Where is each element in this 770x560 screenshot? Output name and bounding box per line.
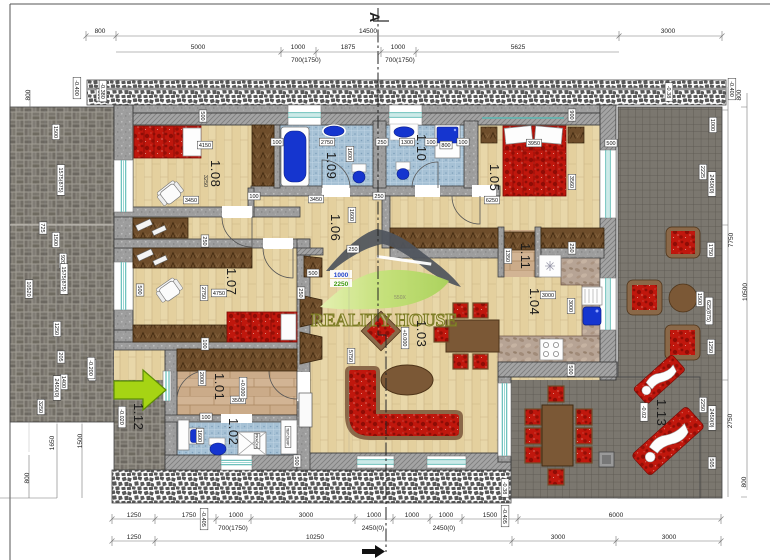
svg-text:205: 205 (57, 352, 63, 361)
svg-text:1600: 1600 (346, 148, 352, 160)
svg-text:1.08: 1.08 (208, 160, 223, 187)
svg-text:1000: 1000 (229, 512, 244, 519)
svg-text:2750: 2750 (727, 413, 734, 428)
svg-text:3950: 3950 (528, 141, 540, 147)
svg-text:2225: 2225 (699, 166, 705, 178)
svg-text:700(1750): 700(1750) (291, 57, 321, 64)
svg-text:250: 250 (568, 243, 574, 252)
svg-text:1500: 1500 (52, 126, 58, 138)
svg-text:+0.000: +0.000 (239, 380, 245, 397)
svg-text:1250: 1250 (53, 323, 59, 335)
svg-text:1750: 1750 (182, 512, 197, 519)
svg-text:+0.000: +0.000 (401, 330, 407, 347)
svg-text:1000: 1000 (709, 119, 715, 131)
svg-text:4150: 4150 (199, 143, 211, 149)
svg-text:1250: 1250 (127, 534, 142, 541)
svg-text:3000: 3000 (567, 300, 573, 312)
svg-text:3000: 3000 (551, 534, 566, 541)
svg-text:3450: 3450 (310, 197, 322, 203)
svg-text:2450(0): 2450(0) (53, 379, 59, 398)
svg-text:1000: 1000 (439, 512, 454, 519)
svg-text:1500: 1500 (483, 512, 498, 519)
svg-text:3560: 3560 (568, 176, 574, 188)
svg-text:625(875): 625(875) (705, 300, 711, 322)
svg-text:250: 250 (201, 236, 207, 245)
svg-text:PRAČKA: PRAČKA (255, 434, 260, 449)
svg-text:2250: 2250 (699, 399, 705, 411)
svg-text:2450(0): 2450(0) (433, 525, 455, 532)
svg-text:100: 100 (201, 415, 210, 421)
svg-text:1.06: 1.06 (328, 214, 343, 241)
svg-text:1600: 1600 (348, 209, 354, 221)
svg-text:1.03: 1.03 (414, 320, 429, 347)
svg-text:TEP.ČERP.: TEP.ČERP. (286, 428, 291, 446)
svg-text:3000: 3000 (661, 28, 676, 35)
svg-text:100: 100 (458, 140, 467, 146)
svg-text:1650: 1650 (49, 435, 56, 450)
svg-text:100: 100 (272, 140, 281, 146)
svg-text:2450(0): 2450(0) (708, 175, 714, 194)
svg-text:500: 500 (567, 365, 573, 374)
svg-text:2450(0): 2450(0) (362, 525, 384, 532)
svg-text:5000: 5000 (191, 44, 206, 51)
svg-text:500: 500 (308, 271, 317, 277)
svg-text:-0.400: -0.400 (728, 81, 734, 97)
svg-text:700(1750): 700(1750) (385, 57, 415, 64)
svg-text:1000: 1000 (367, 512, 382, 519)
svg-text:1875: 1875 (341, 44, 356, 51)
svg-text:-0.400: -0.400 (73, 80, 79, 96)
svg-text:2750: 2750 (321, 140, 333, 146)
svg-text:1.01: 1.01 (212, 373, 227, 400)
svg-text:1000: 1000 (405, 512, 420, 519)
svg-text:-0.02: -0.02 (640, 406, 646, 419)
svg-text:10250: 10250 (306, 534, 324, 541)
svg-text:2450(0): 2450(0) (708, 409, 714, 428)
svg-text:800: 800 (25, 89, 32, 100)
svg-text:100: 100 (249, 194, 258, 200)
svg-text:505: 505 (708, 458, 714, 467)
svg-text:250: 250 (374, 194, 383, 200)
svg-text:500: 500 (293, 456, 299, 465)
svg-text:REALITY HOUSE: REALITY HOUSE (311, 310, 457, 330)
svg-text:250: 250 (348, 247, 357, 253)
svg-text:3250: 3250 (202, 175, 208, 187)
svg-text:-0.405: -0.405 (501, 508, 507, 524)
svg-text:1.02: 1.02 (226, 418, 241, 445)
svg-text:1000: 1000 (334, 272, 349, 279)
svg-text:1000: 1000 (291, 44, 306, 51)
svg-text:1.04: 1.04 (527, 288, 542, 315)
svg-text:4750: 4750 (213, 291, 225, 297)
svg-text:3450: 3450 (185, 198, 197, 204)
svg-text:800: 800 (95, 28, 106, 35)
svg-text:1500: 1500 (696, 293, 702, 305)
svg-text:500: 500 (606, 141, 615, 147)
svg-text:-0.38: -0.38 (501, 482, 507, 495)
svg-text:5750: 5750 (347, 350, 353, 362)
svg-text:1250: 1250 (707, 341, 713, 353)
svg-text:1350: 1350 (504, 250, 510, 262)
svg-text:500: 500 (199, 111, 205, 120)
svg-text:800: 800 (441, 143, 450, 149)
svg-text:1750: 1750 (707, 244, 713, 256)
svg-text:250: 250 (297, 288, 303, 297)
svg-text:3000: 3000 (662, 534, 677, 541)
svg-text:100: 100 (201, 339, 207, 348)
svg-text:6250: 6250 (486, 198, 498, 204)
svg-text:725: 725 (39, 223, 45, 232)
svg-text:250: 250 (377, 140, 386, 146)
svg-text:14500: 14500 (359, 28, 377, 35)
svg-text:5625: 5625 (511, 44, 526, 51)
svg-text:1.12: 1.12 (131, 403, 146, 430)
svg-text:3000: 3000 (299, 512, 314, 519)
svg-text:3000: 3000 (542, 293, 554, 299)
svg-text:1600: 1600 (196, 430, 202, 442)
svg-text:800: 800 (736, 89, 743, 100)
svg-text:-0.020: -0.020 (118, 409, 124, 425)
svg-text:900: 900 (568, 110, 574, 119)
svg-text:2750: 2750 (200, 287, 206, 299)
svg-text:6000: 6000 (609, 512, 624, 519)
svg-text:1.11: 1.11 (518, 243, 533, 269)
svg-text:800: 800 (24, 472, 31, 483)
svg-text:1250: 1250 (127, 512, 142, 519)
svg-text:800: 800 (741, 476, 748, 487)
svg-text:500: 500 (136, 285, 142, 294)
svg-text:1300: 1300 (401, 140, 413, 146)
svg-text:550X: 550X (394, 295, 406, 301)
svg-text:1.13: 1.13 (654, 399, 669, 426)
svg-text:10500: 10500 (742, 283, 749, 301)
svg-text:2000: 2000 (198, 372, 204, 384)
svg-text:1.05: 1.05 (487, 164, 502, 191)
svg-text:10520: 10520 (25, 281, 31, 296)
svg-text:-0.200: -0.200 (87, 360, 93, 376)
svg-text:-0.380: -0.380 (99, 83, 105, 99)
svg-text:1575(875): 1575(875) (57, 167, 63, 192)
svg-text:1575(875): 1575(875) (60, 266, 66, 291)
svg-text:3250: 3250 (37, 401, 43, 413)
svg-text:1000: 1000 (391, 44, 406, 51)
svg-text:1.09: 1.09 (324, 152, 339, 179)
svg-text:2250: 2250 (334, 281, 349, 288)
svg-text:1500: 1500 (77, 433, 84, 448)
svg-text:700(1750): 700(1750) (218, 525, 248, 532)
svg-text:-0.405: -0.405 (200, 511, 206, 527)
svg-text:100: 100 (426, 140, 435, 146)
svg-text:1500: 1500 (52, 234, 58, 246)
svg-text:7750: 7750 (728, 232, 735, 247)
svg-text:-0.38: -0.38 (665, 86, 671, 99)
